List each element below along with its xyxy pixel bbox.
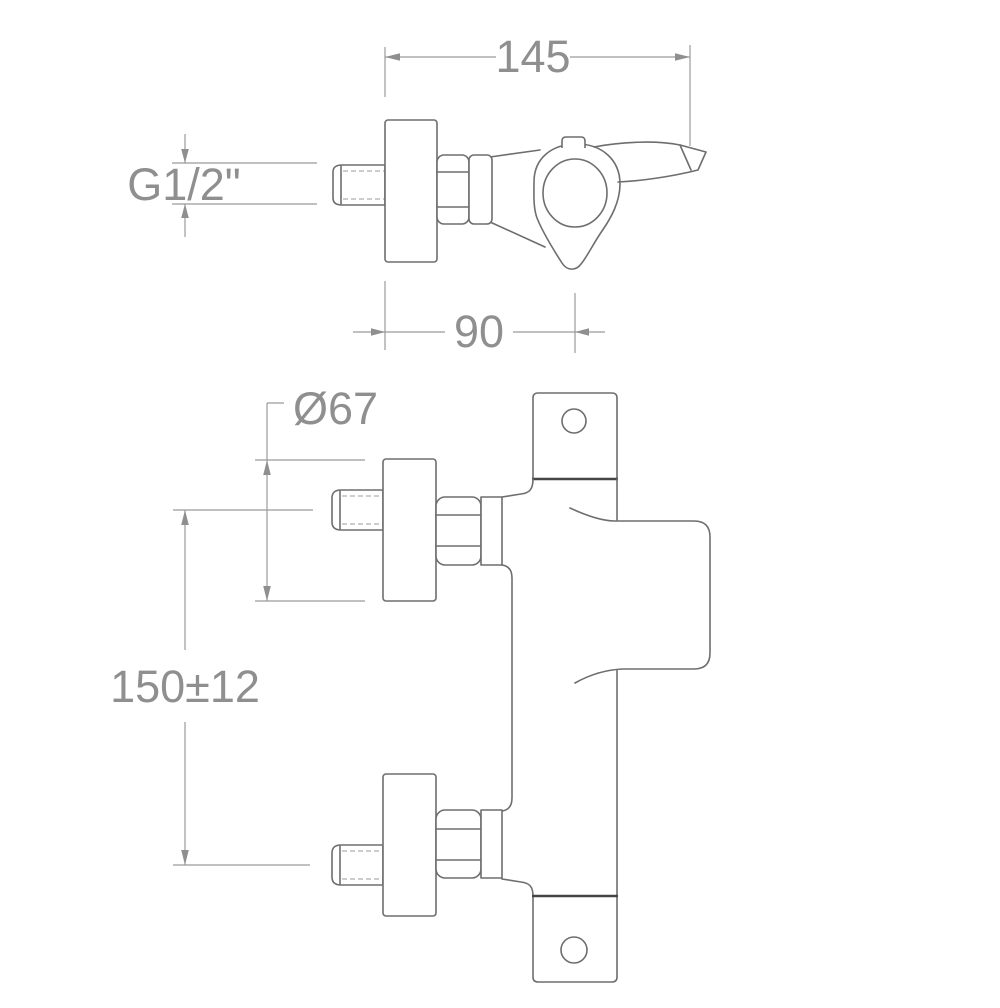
collar-side	[469, 155, 492, 224]
bottom-bracket	[533, 896, 617, 982]
wall-flange-side	[385, 120, 437, 262]
lower-neck	[481, 810, 502, 878]
dimension-90: 90	[353, 281, 605, 357]
shower-mixer-drawing: 145 G1/2" 90	[0, 0, 1000, 1008]
arrow-top	[263, 460, 271, 475]
upper-hex-nut	[436, 497, 481, 565]
dim-90-label: 90	[454, 306, 504, 357]
dimension-150: 150±12	[110, 510, 313, 865]
bottom-bracket-hole	[561, 937, 587, 963]
upper-flange	[383, 459, 436, 601]
lower-flange	[383, 774, 436, 916]
handle-tab	[562, 137, 585, 148]
column-step-lower	[502, 879, 533, 896]
spout-bulge-fill	[577, 509, 710, 682]
column-step-upper	[502, 479, 533, 497]
dim-145-label: 145	[495, 31, 570, 82]
lever-tip-facet	[680, 145, 691, 170]
arrow-right	[675, 53, 690, 61]
cone-top-edge	[490, 150, 540, 157]
arrow-left	[385, 53, 400, 61]
hex-nut-side	[437, 155, 469, 224]
arrow-bottom	[181, 850, 189, 865]
dim-150-label: 150±12	[110, 661, 260, 712]
cartridge-cap-circle	[543, 159, 607, 227]
top-bracket-hole	[562, 409, 586, 433]
arrow-top	[181, 510, 189, 525]
upper-neck	[481, 497, 502, 565]
dim-g12-label: G1/2"	[127, 159, 241, 210]
top-view	[333, 120, 706, 269]
housing-left-edge	[502, 565, 512, 811]
technical-drawing-page: 145 G1/2" 90	[0, 0, 1000, 1008]
arrow-left	[371, 328, 385, 336]
cone-bottom-edge	[490, 222, 545, 247]
top-bracket	[533, 393, 617, 479]
front-view	[332, 393, 710, 982]
lower-hex-nut	[436, 810, 481, 878]
arrow-right	[575, 328, 589, 336]
dim-67-label: Ø67	[293, 383, 378, 434]
dimension-g12: G1/2"	[127, 134, 317, 237]
arrow-bottom	[263, 586, 271, 601]
